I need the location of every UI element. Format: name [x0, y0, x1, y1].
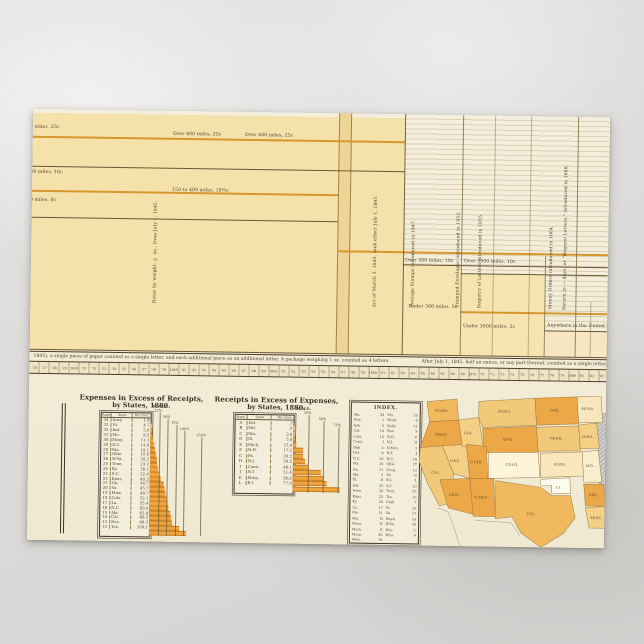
state-cell: Wis. — [247, 432, 272, 436]
timeline-rate-label: 150 to 400 miles, 10c — [27, 169, 63, 175]
map-state-label: TEX. — [527, 512, 536, 516]
map-state-label: UTAH — [470, 460, 482, 464]
map-state-label: NEBR. — [550, 436, 563, 440]
year-tick: '35 — [119, 367, 129, 371]
postcard: Over 400 miles, 25c150 to 400 miles, 10c… — [27, 109, 610, 549]
index-panel: INDEX. Ala.20Ariz.1Ark.5Cal.14Colo.18Con… — [349, 401, 421, 544]
index-left-column: Ala.20Ariz.1Ark.5Cal.14Colo.18Conn.IDak.… — [352, 413, 384, 544]
rank-cell: 34 — [102, 418, 112, 422]
scale-line — [174, 425, 177, 536]
year-tick: '41 — [179, 367, 189, 371]
left-chart-bars: SCALE:25%50%75%100%150% — [149, 413, 213, 537]
rank-cell: D — [235, 437, 247, 441]
rank-cell: 32 — [101, 428, 111, 432]
state-cell: Ky. — [111, 467, 132, 471]
scale-line — [183, 431, 186, 536]
percent-cell: 8.5 — [132, 433, 150, 437]
percent-cell: 56.8 — [271, 476, 293, 480]
year-tick: 1840 — [169, 367, 179, 371]
year-tick: '65 — [417, 371, 427, 375]
state-cell: Ill. — [247, 437, 272, 441]
timeline-rate-label: 150 to 400 miles, 18¾c — [172, 188, 229, 194]
state-cell: Vt. — [112, 423, 133, 427]
scale-label: 50% — [319, 417, 327, 421]
rank-cell: 15 — [100, 510, 110, 514]
state-cell: Cal. — [110, 515, 131, 519]
map-state-label: WYO. — [503, 438, 514, 442]
rank-cell: 33 — [102, 423, 112, 427]
year-tick: '34 — [109, 366, 119, 370]
year-tick: '71 — [477, 372, 487, 376]
year-tick: 1870 — [467, 372, 477, 376]
year-tick: '62 — [388, 371, 398, 375]
timeline-vline — [575, 117, 580, 358]
timeline-rate-label: Under 3000 miles, 3c — [463, 324, 515, 330]
timeline-rate-label: Over 400 miles, 25c — [27, 124, 60, 130]
rank-cell: H — [235, 459, 247, 463]
state-cell: Mo. — [111, 447, 132, 451]
scale-label: 50% — [163, 415, 171, 419]
percent-cell: 77.9 — [271, 482, 293, 486]
timeline-rate-label: Over 3000 miles, 10c — [464, 259, 516, 265]
year-tick: '83 — [597, 374, 607, 378]
timeline-rate-label: 80 to 150 miles, 6c — [27, 197, 56, 203]
scale-label: 75% — [171, 421, 179, 425]
state-cell: Me. — [111, 433, 132, 437]
state-cell: N.C. — [110, 506, 131, 510]
timeline-rate-label: Under 300 miles, 5c — [408, 304, 457, 310]
rank-cell: 23 — [101, 472, 111, 476]
map-state-label: MISS. — [590, 516, 602, 520]
state-cell: Nev. — [110, 520, 131, 524]
rank-cell: 29 — [101, 442, 111, 446]
percent-cell: 5.8 — [272, 438, 294, 442]
year-tick: '68 — [447, 371, 457, 375]
year-tick: '26 — [29, 365, 39, 369]
marble-background: Over 400 miles, 25c150 to 400 miles, 10c… — [0, 0, 644, 644]
percent-cell: .7 — [272, 421, 294, 425]
index-row: Miss.19 — [352, 538, 383, 544]
rank-cell: A — [236, 421, 248, 425]
year-tick: '77 — [537, 373, 547, 377]
scale-label: 25% — [154, 409, 162, 413]
timeline-event-annotation: Money Orders introduced in 1864. — [548, 226, 554, 310]
year-tick: '38 — [149, 367, 159, 371]
rank-cell: E — [235, 443, 247, 447]
year-tick: '36 — [129, 367, 139, 371]
column-header: Rank — [102, 413, 112, 417]
percent-cell: 60.4 — [131, 506, 149, 510]
percent-cell: 52.1 — [131, 496, 149, 500]
percent-cell: 24.5 — [271, 460, 293, 464]
percent-cell: 23.2 — [132, 462, 150, 466]
index-rank: 19 — [378, 538, 382, 544]
rank-cell: 25 — [101, 462, 111, 466]
map-state-label: NEV. — [450, 459, 460, 463]
timeline-chart: Over 400 miles, 25c150 to 400 miles, 10c… — [30, 109, 611, 359]
year-tick: '48 — [248, 368, 258, 372]
map-state-label: CAL. — [431, 471, 441, 475]
rank-cell: 21 — [101, 481, 111, 485]
column-header: State — [247, 415, 272, 419]
clipped-border — [63, 403, 66, 533]
year-tick: 1830 — [69, 366, 79, 370]
year-tick: '43 — [199, 368, 209, 372]
year-tick: '55 — [318, 369, 328, 373]
year-tick: '31 — [79, 366, 89, 370]
map-state-label: IDA. — [464, 431, 473, 435]
year-tick: '76 — [527, 373, 537, 377]
year-tick: '39 — [159, 367, 169, 371]
map-state-label: DAK. — [550, 408, 560, 412]
year-tick: '56 — [328, 370, 338, 374]
state-cell: D.C. — [111, 443, 132, 447]
percent-cell: 11.1 — [132, 438, 150, 442]
map-state-label: OREG. — [435, 433, 448, 437]
state-cell: Colo. — [110, 496, 131, 500]
state-cell: R.I. — [246, 481, 271, 485]
column-header: Rank — [236, 415, 248, 419]
rank-cell: L — [235, 481, 247, 485]
year-tick: '78 — [547, 373, 557, 377]
year-tick: '29 — [59, 366, 69, 370]
year-tick: '46 — [228, 368, 238, 372]
state-cell: Minn. — [111, 438, 132, 442]
rank-cell: 22 — [101, 476, 111, 480]
percent-cell: 45.7 — [131, 487, 149, 491]
state-cell: Kans. — [111, 477, 132, 481]
index-right-column: Mo.28Mont.8Nebr.11Nev.9N.H.FN.J.HN.Mex.2… — [385, 413, 417, 544]
year-tick: '33 — [99, 366, 109, 370]
year-tick: 1880 — [567, 373, 577, 377]
scale-label: 75% — [334, 423, 342, 427]
map-state-label: IOWA — [582, 435, 593, 439]
state-cell: Ohio — [111, 452, 132, 456]
bar — [293, 448, 303, 453]
rank-cell: 16 — [100, 505, 110, 509]
state-cell: Del. — [247, 421, 272, 425]
state-cell: W.Va. — [111, 457, 132, 461]
percent-cell: 109.1 — [131, 525, 149, 529]
map-state-label: MO. — [586, 464, 594, 468]
bar — [149, 530, 186, 536]
timeline-block — [460, 273, 545, 357]
year-tick: '49 — [258, 369, 268, 373]
percent-cell: 88.3 — [131, 520, 149, 524]
bar — [293, 442, 297, 447]
map-state-label: KANS. — [554, 463, 567, 467]
rank-cell: 14 — [100, 515, 110, 519]
table-row: 12Tex.109.1 — [100, 524, 149, 530]
scale-label: 25% — [304, 411, 312, 415]
rank-cell: 17 — [100, 501, 110, 505]
state-cell: Miss. — [111, 491, 132, 495]
rank-cell: 18 — [100, 496, 110, 500]
rank-cell: 28 — [101, 447, 111, 451]
left-chart-title: Expenses in Excess of Receipts, by State… — [79, 393, 204, 410]
year-tick: '54 — [308, 369, 318, 373]
rank-cell: I — [235, 465, 247, 469]
bar — [293, 437, 295, 442]
year-tick: '27 — [39, 365, 49, 369]
percent-cell: 68.3 — [131, 516, 149, 520]
percent-cell: 17.2 — [272, 449, 294, 453]
year-tick: '67 — [437, 371, 447, 375]
index-title: INDEX. — [354, 405, 418, 412]
state-cell: N.J. — [247, 459, 272, 463]
year-tick: '51 — [278, 369, 288, 373]
percent-cell: 55.4 — [131, 501, 149, 505]
percent-cell: 15.9 — [272, 443, 294, 447]
year-tick: '37 — [139, 367, 149, 371]
timeline-rate-label: Over 400 miles, 25c — [173, 132, 222, 138]
rank-cell: J — [235, 470, 247, 474]
rank-cell: 31 — [101, 433, 111, 437]
percent-cell: 3.8 — [272, 432, 294, 436]
year-tick: '81 — [577, 373, 587, 377]
year-tick: '75 — [517, 372, 527, 376]
year-tick: '72 — [487, 372, 497, 376]
percent-cell: 46.1 — [271, 465, 293, 469]
rank-cell: C — [235, 432, 247, 436]
year-tick: '64 — [408, 371, 418, 375]
bar — [293, 486, 340, 492]
year-tick: '57 — [338, 370, 348, 374]
percent-cell: 63.8 — [131, 511, 149, 515]
year-tick: '63 — [398, 371, 408, 375]
middle-chart-table: RankStatePer Cent.ADel..7BMd..9CWis.3.8D… — [234, 414, 295, 495]
us-map-svg: WASH.OREG.CAL.NEV.IDA.MONT.WYO.UTAHCOLO.… — [415, 393, 607, 548]
index-state: Miss. — [352, 538, 361, 544]
state-cell: La. — [110, 501, 131, 505]
year-tick: '69 — [457, 372, 467, 376]
map-state-label: WASH. — [435, 409, 449, 413]
rank-cell: 27 — [101, 452, 111, 456]
state-cell: Pa. — [247, 454, 272, 458]
rank-cell: B — [235, 426, 247, 430]
map-state-label: COLO. — [506, 463, 519, 467]
scale-line — [338, 427, 340, 493]
map-state-label: ARIZ. — [448, 493, 460, 497]
rank-cell: 13 — [100, 520, 110, 524]
state-cell: Conn. — [247, 465, 272, 469]
percent-cell: 5.6 — [132, 428, 150, 432]
year-tick: '59 — [358, 370, 368, 374]
year-tick: '82 — [587, 373, 597, 377]
state-cell: Iowa — [112, 418, 133, 422]
map-state-label: N.MEX. — [474, 495, 489, 499]
rank-cell: 19 — [101, 491, 111, 495]
rank-cell: 24 — [101, 467, 111, 471]
state-cell: N.H. — [247, 448, 272, 452]
percent-cell: 14.0 — [132, 443, 150, 447]
state-cell: Ind. — [111, 428, 132, 432]
state-cell: Tex. — [110, 525, 131, 529]
column-header: State — [112, 413, 133, 417]
percent-cell: 32.4 — [132, 472, 150, 476]
rank-cell: F — [235, 448, 247, 452]
year-tick: '79 — [557, 373, 567, 377]
year-tick: '32 — [89, 366, 99, 370]
index-row: Wyo.4 — [385, 533, 416, 539]
percent-cell: .9 — [272, 427, 294, 431]
map-state-label: MONT. — [498, 410, 512, 414]
year-tick: 1850 — [268, 369, 278, 373]
year-tick: '74 — [507, 372, 517, 376]
state-cell: Mich. — [247, 443, 272, 447]
year-tick: '73 — [497, 372, 507, 376]
percent-cell: 18.1 — [132, 448, 150, 452]
timeline-event-annotation: Return in — days, or "Request Letters," … — [562, 164, 569, 309]
percent-cell: 4.7 — [132, 424, 150, 428]
map-state-label: I.T. — [556, 486, 562, 490]
state-cell: N.Y. — [247, 470, 272, 474]
percent-cell: 1.8 — [132, 419, 150, 423]
year-tick: '61 — [378, 370, 388, 374]
column-header: Per Cent. — [133, 413, 151, 417]
state-cell: Ga. — [111, 481, 132, 485]
left-chart-table: RankStatePer Cent.34Iowa1.833Vt.4.732Ind… — [99, 412, 152, 538]
percent-cell: 44.7 — [132, 482, 150, 486]
percent-cell: 26.1 — [132, 467, 150, 471]
column-header: Per Cent. — [272, 415, 294, 419]
rank-cell: 12 — [100, 525, 110, 529]
year-tick: '47 — [238, 368, 248, 372]
year-tick: '44 — [209, 368, 219, 372]
state-cell: Md. — [247, 426, 272, 430]
year-tick: 1860 — [368, 370, 378, 374]
percent-cell: 20.2 — [272, 454, 294, 458]
rank-cell: K — [235, 476, 247, 480]
scale-line — [200, 437, 202, 536]
percent-cell: 19.9 — [132, 453, 150, 457]
state-cell: Tenn. — [111, 462, 132, 466]
year-tick: '53 — [298, 369, 308, 373]
rank-cell: 26 — [101, 457, 111, 461]
state-cell: S.C. — [111, 472, 132, 476]
year-tick: '52 — [288, 369, 298, 373]
rank-cell: 20 — [101, 486, 111, 490]
rank-cell: 30 — [101, 438, 111, 442]
year-tick: '45 — [218, 368, 228, 372]
bar — [293, 431, 294, 436]
middle-chart-title: Receipts in Excess of Expenses, by State… — [214, 395, 339, 412]
index-state: Wyo. — [385, 533, 393, 539]
state-cell: Va. — [111, 486, 132, 490]
percent-cell: 40.3 — [132, 477, 150, 481]
year-tick: '66 — [427, 371, 437, 375]
rank-cell: G — [235, 454, 247, 458]
map-state-label: MINN. — [581, 407, 594, 411]
percent-cell: 51.4 — [271, 471, 293, 475]
state-cell: Ala. — [110, 510, 131, 514]
timeline-rate-label: Anywhere in the United States, 3c — [547, 323, 610, 329]
percent-cell: 48.7 — [131, 491, 149, 495]
percent-cell: 20.2 — [132, 457, 150, 461]
year-tick: '42 — [189, 368, 199, 372]
year-tick: '58 — [348, 370, 358, 374]
timeline-rate-label: Over 400 miles, 25c — [245, 133, 294, 139]
table-row: LR.I.77.9 — [235, 480, 293, 486]
us-map: WASH.OREG.CAL.NEV.IDA.MONT.WYO.UTAHCOLO.… — [415, 393, 607, 548]
state-cell: Mass. — [247, 476, 272, 480]
year-tick: '28 — [49, 366, 59, 370]
map-state-label: ARK. — [588, 493, 599, 497]
